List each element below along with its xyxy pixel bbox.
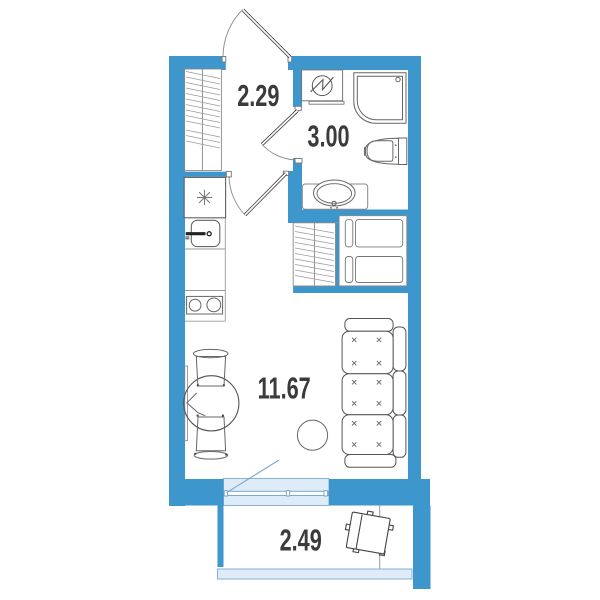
svg-text:2.49: 2.49 [280, 523, 322, 558]
svg-text:2.29: 2.29 [237, 78, 279, 113]
svg-text:11.67: 11.67 [258, 371, 311, 406]
svg-text:3.00: 3.00 [307, 119, 349, 154]
